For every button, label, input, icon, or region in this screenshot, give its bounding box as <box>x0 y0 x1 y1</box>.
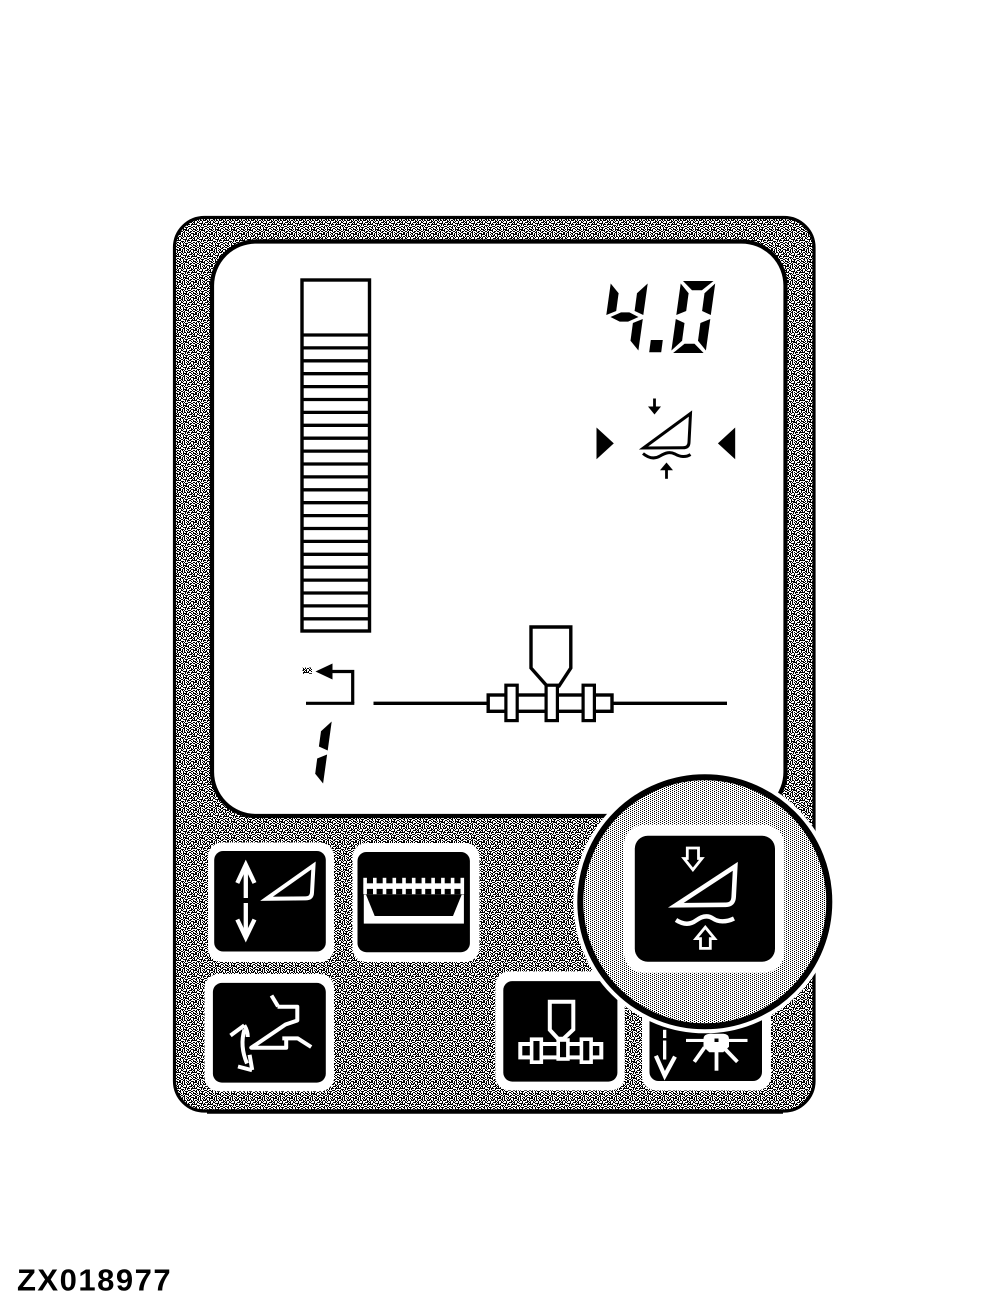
svg-text:ZX018977: ZX018977 <box>17 1263 172 1298</box>
